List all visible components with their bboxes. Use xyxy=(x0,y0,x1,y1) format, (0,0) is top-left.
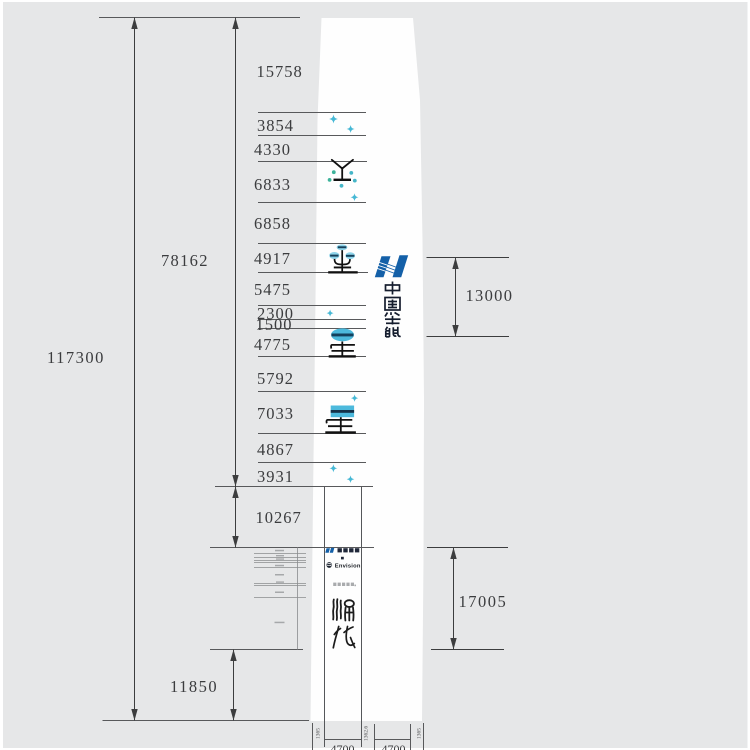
svg-text:17005: 17005 xyxy=(459,592,508,611)
svg-text:Envision: Envision xyxy=(335,563,361,569)
svg-text:1362.6: 1362.6 xyxy=(364,726,370,741)
svg-text:4700: 4700 xyxy=(382,742,406,750)
svg-text:5792: 5792 xyxy=(257,369,294,388)
svg-text:3854: 3854 xyxy=(257,116,294,135)
svg-text:15758: 15758 xyxy=(257,62,303,81)
svg-text:4775: 4775 xyxy=(254,335,291,354)
svg-text:10267: 10267 xyxy=(256,508,302,527)
svg-text:6858: 6858 xyxy=(254,214,291,233)
svg-text:4917: 4917 xyxy=(254,249,291,268)
svg-text:4700: 4700 xyxy=(331,742,355,750)
svg-text:117300: 117300 xyxy=(47,348,105,367)
svg-text:4330: 4330 xyxy=(254,140,291,159)
svg-text:6833: 6833 xyxy=(254,175,291,194)
svg-text:78162: 78162 xyxy=(161,251,209,270)
svg-text:3931: 3931 xyxy=(257,467,294,486)
svg-text:1500: 1500 xyxy=(256,315,293,334)
svg-text:5475: 5475 xyxy=(254,280,291,299)
svg-text:1365: 1365 xyxy=(316,728,322,739)
svg-text:11850: 11850 xyxy=(170,677,218,696)
svg-text:7033: 7033 xyxy=(257,404,294,423)
svg-text:13000: 13000 xyxy=(466,286,514,305)
svg-text:1365: 1365 xyxy=(417,728,423,739)
svg-text:4867: 4867 xyxy=(257,440,294,459)
